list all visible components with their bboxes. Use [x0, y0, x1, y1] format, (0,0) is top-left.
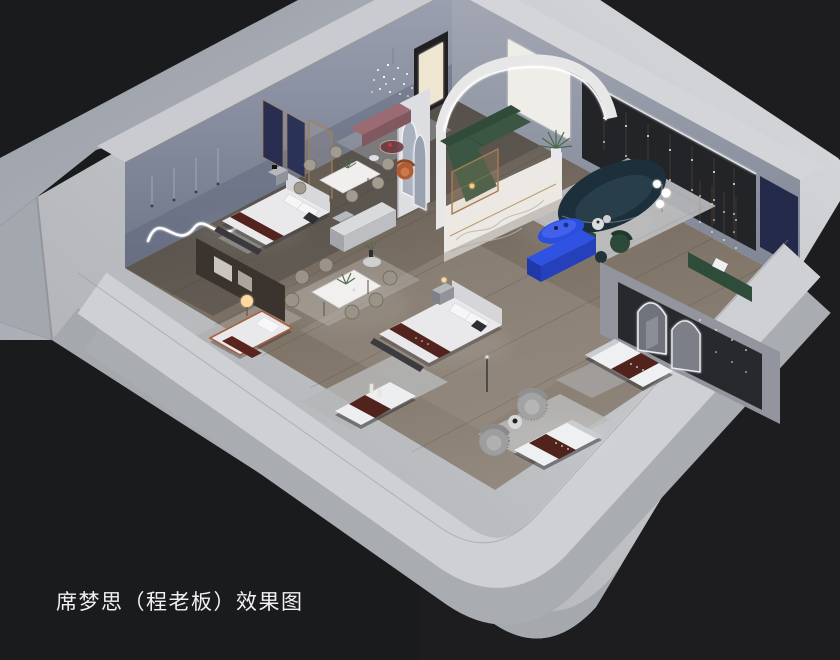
render-page: 席梦思（程老板）效果图 [0, 0, 840, 660]
orange-lounge-chair [396, 161, 414, 180]
glow-sphere-lamp [241, 295, 253, 307]
caption: 席梦思（程老板）效果图 [56, 586, 304, 616]
showroom-render [0, 0, 840, 660]
glass-partition [309, 120, 332, 198]
